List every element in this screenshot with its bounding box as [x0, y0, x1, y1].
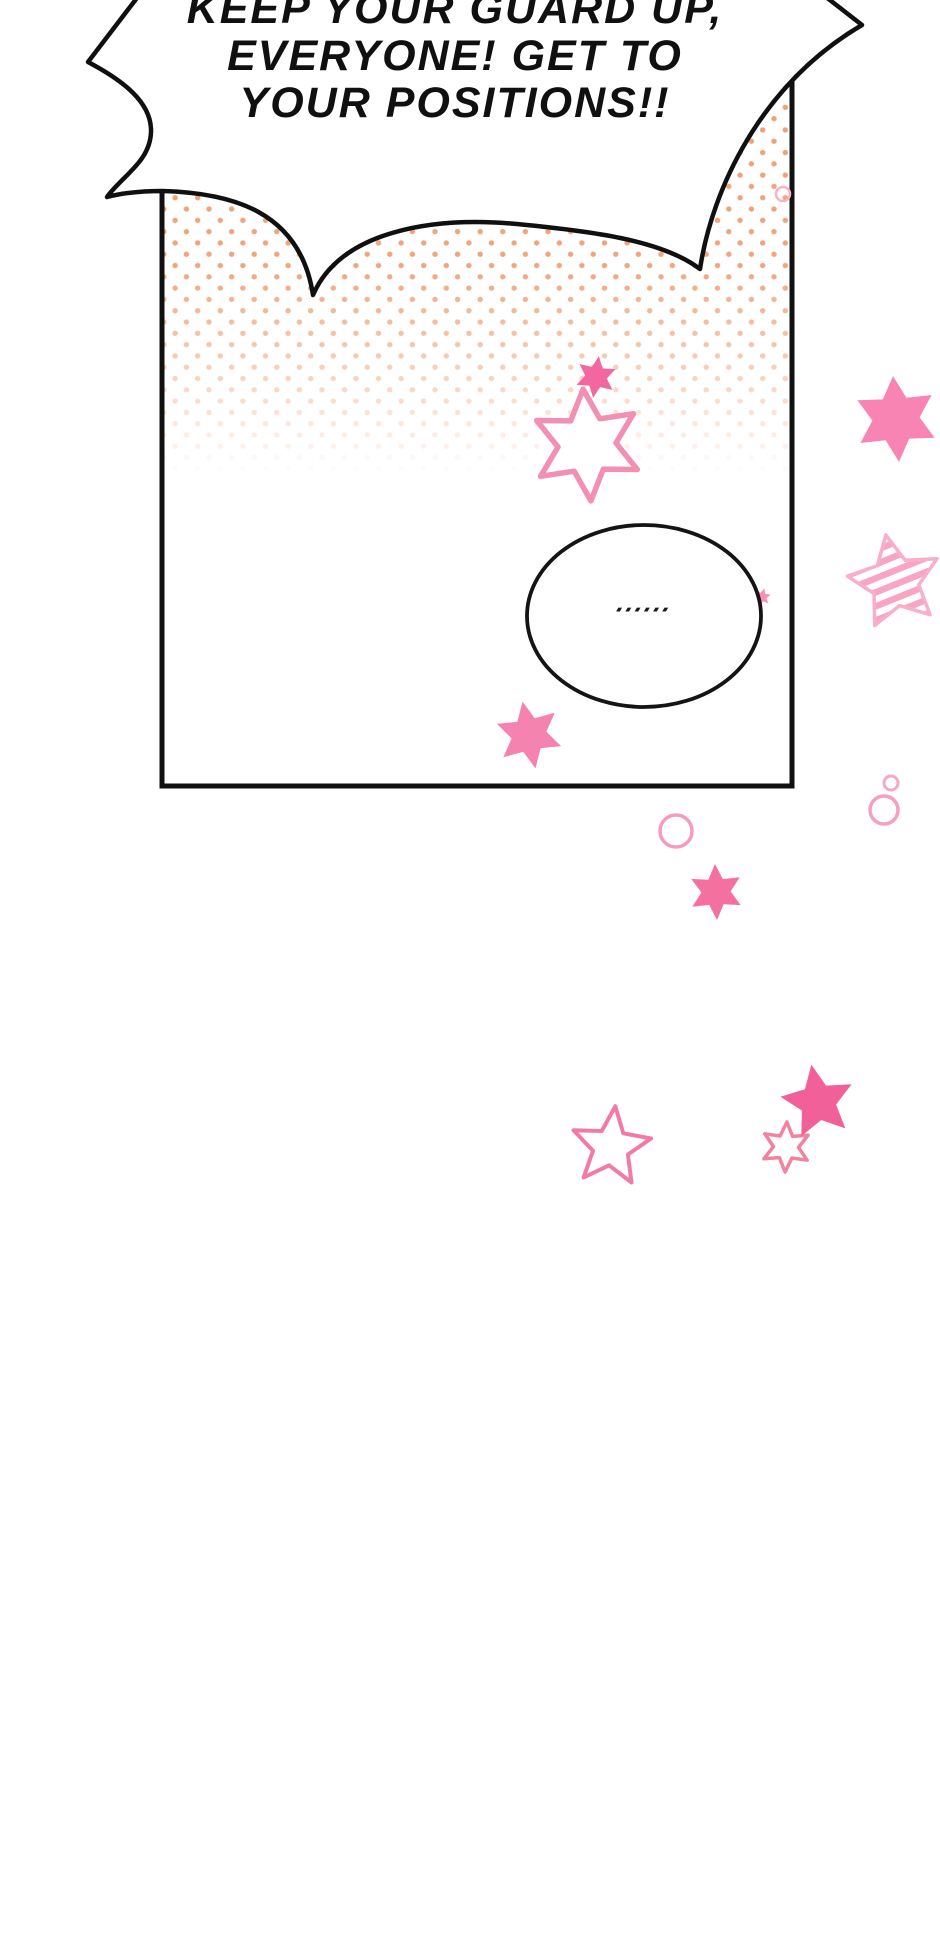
star-filled-panel-bottom: [497, 702, 561, 769]
comic-art-canvas: [0, 0, 940, 1953]
star-outline-bottom-left: [574, 1106, 652, 1182]
circle-outline-below-panel: [660, 815, 692, 847]
speech-line-3: YOUR POSITIONS!!: [105, 80, 805, 127]
circle-outline-right: [870, 796, 898, 824]
star-filled-below-panel: [691, 864, 740, 920]
speech-bubble-text: KEEP YOUR GUARD UP, EVERYONE! GET TO YOU…: [105, 0, 805, 127]
speech-line-2: EVERYONE! GET TO: [105, 33, 805, 80]
star-striped-right: [847, 535, 937, 626]
circle-outline-small-right: [884, 776, 898, 790]
star-filled-bottom-right: [780, 1065, 851, 1137]
speech-line-1: KEEP YOUR GUARD UP,: [105, 0, 805, 33]
webtoon-page: { "page": { "background": "#FFFFFF", "wi…: [0, 0, 940, 1953]
star-filled-right-top: [857, 376, 934, 462]
